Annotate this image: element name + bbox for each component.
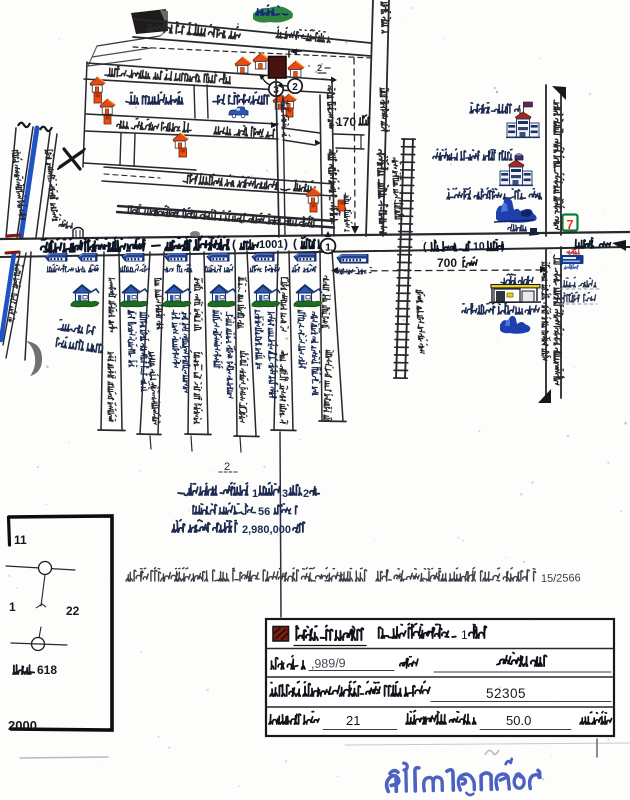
svg-text:(: ( [293, 236, 297, 250]
svg-text:170: 170 [336, 115, 356, 129]
svg-text:618: 618 [37, 663, 57, 677]
svg-text:2: 2 [303, 488, 309, 500]
svg-text:50.0: 50.0 [506, 713, 531, 728]
svg-text:1001: 1001 [259, 239, 284, 251]
svg-text:11: 11 [14, 533, 27, 547]
svg-text:,989/9: ,989/9 [311, 656, 346, 671]
svg-text:15/2566: 15/2566 [541, 572, 581, 585]
svg-text:(: ( [232, 237, 236, 251]
svg-text:22: 22 [66, 604, 80, 618]
svg-text:56: 56 [258, 506, 270, 518]
svg-text:52305: 52305 [486, 686, 526, 701]
svg-text:2,980,000: 2,980,000 [242, 524, 291, 536]
svg-text:1: 1 [252, 488, 258, 500]
svg-text:2: 2 [224, 461, 230, 473]
svg-text:2000: 2000 [8, 718, 37, 733]
svg-text:10: 10 [473, 240, 485, 252]
svg-text:1: 1 [325, 242, 331, 254]
svg-text:21: 21 [346, 713, 360, 728]
svg-text:7: 7 [566, 217, 573, 232]
svg-text:(: ( [423, 241, 427, 253]
svg-text:): ) [284, 237, 288, 251]
svg-text:): ) [501, 240, 505, 252]
svg-text:3: 3 [282, 488, 288, 500]
svg-text:2: 2 [292, 82, 298, 93]
svg-text:700: 700 [437, 256, 457, 270]
svg-text:1: 1 [461, 628, 468, 642]
svg-text:1: 1 [9, 600, 16, 614]
